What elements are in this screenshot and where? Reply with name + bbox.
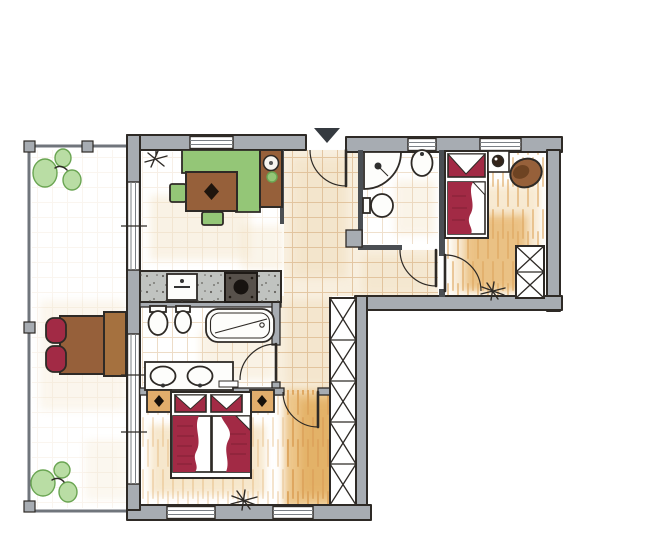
duct-pier <box>346 230 362 247</box>
window-left-lower <box>128 334 140 484</box>
window-bottom-left <box>167 507 215 519</box>
kitchen-counter-speckle <box>140 271 281 302</box>
toilet <box>363 194 393 217</box>
pillow-left <box>175 395 206 412</box>
railing-post <box>24 141 35 152</box>
single-bed-pillow <box>448 154 485 177</box>
balcony-table-extension <box>104 312 126 376</box>
wall-bath-small-bottom <box>358 245 402 250</box>
washbasin <box>412 150 433 176</box>
bathtub <box>206 309 274 342</box>
window-top-bedroom-single <box>480 139 521 151</box>
window-top-kitchen <box>190 137 233 149</box>
nightstand-right <box>250 390 274 412</box>
dining-chair <box>170 184 186 202</box>
window-top-bath-small <box>408 139 436 151</box>
railing-post <box>82 141 93 152</box>
dining-chair <box>202 212 223 225</box>
wall-right <box>547 150 560 311</box>
round-sink-drain <box>269 161 273 165</box>
window-bottom-right <box>273 507 313 519</box>
bidet <box>175 306 191 333</box>
single-bed-duvet <box>448 182 485 234</box>
balcony-chair <box>46 346 66 372</box>
potted-plant-icon <box>267 172 277 182</box>
floor-plan-canvas <box>0 0 670 550</box>
nightstand-left <box>147 390 171 412</box>
stove <box>225 273 257 302</box>
railing-post <box>24 501 35 512</box>
lamp-icon <box>493 156 504 167</box>
floor-plan-drawing <box>0 0 670 550</box>
wall-top-right <box>346 137 562 152</box>
toilet <box>149 306 168 335</box>
railing-post <box>24 322 35 333</box>
balcony-table <box>60 316 106 374</box>
nightstand <box>488 151 509 172</box>
duvet-right <box>212 416 250 472</box>
kitchen-sink <box>167 274 197 300</box>
balcony-chair <box>46 318 66 343</box>
duvet-left <box>173 416 211 472</box>
door-step <box>219 381 238 387</box>
pillow-right <box>211 395 242 412</box>
hall-wardrobe <box>330 298 356 505</box>
wardrobe <box>516 246 544 298</box>
entrance-marker-triangle <box>314 128 340 143</box>
